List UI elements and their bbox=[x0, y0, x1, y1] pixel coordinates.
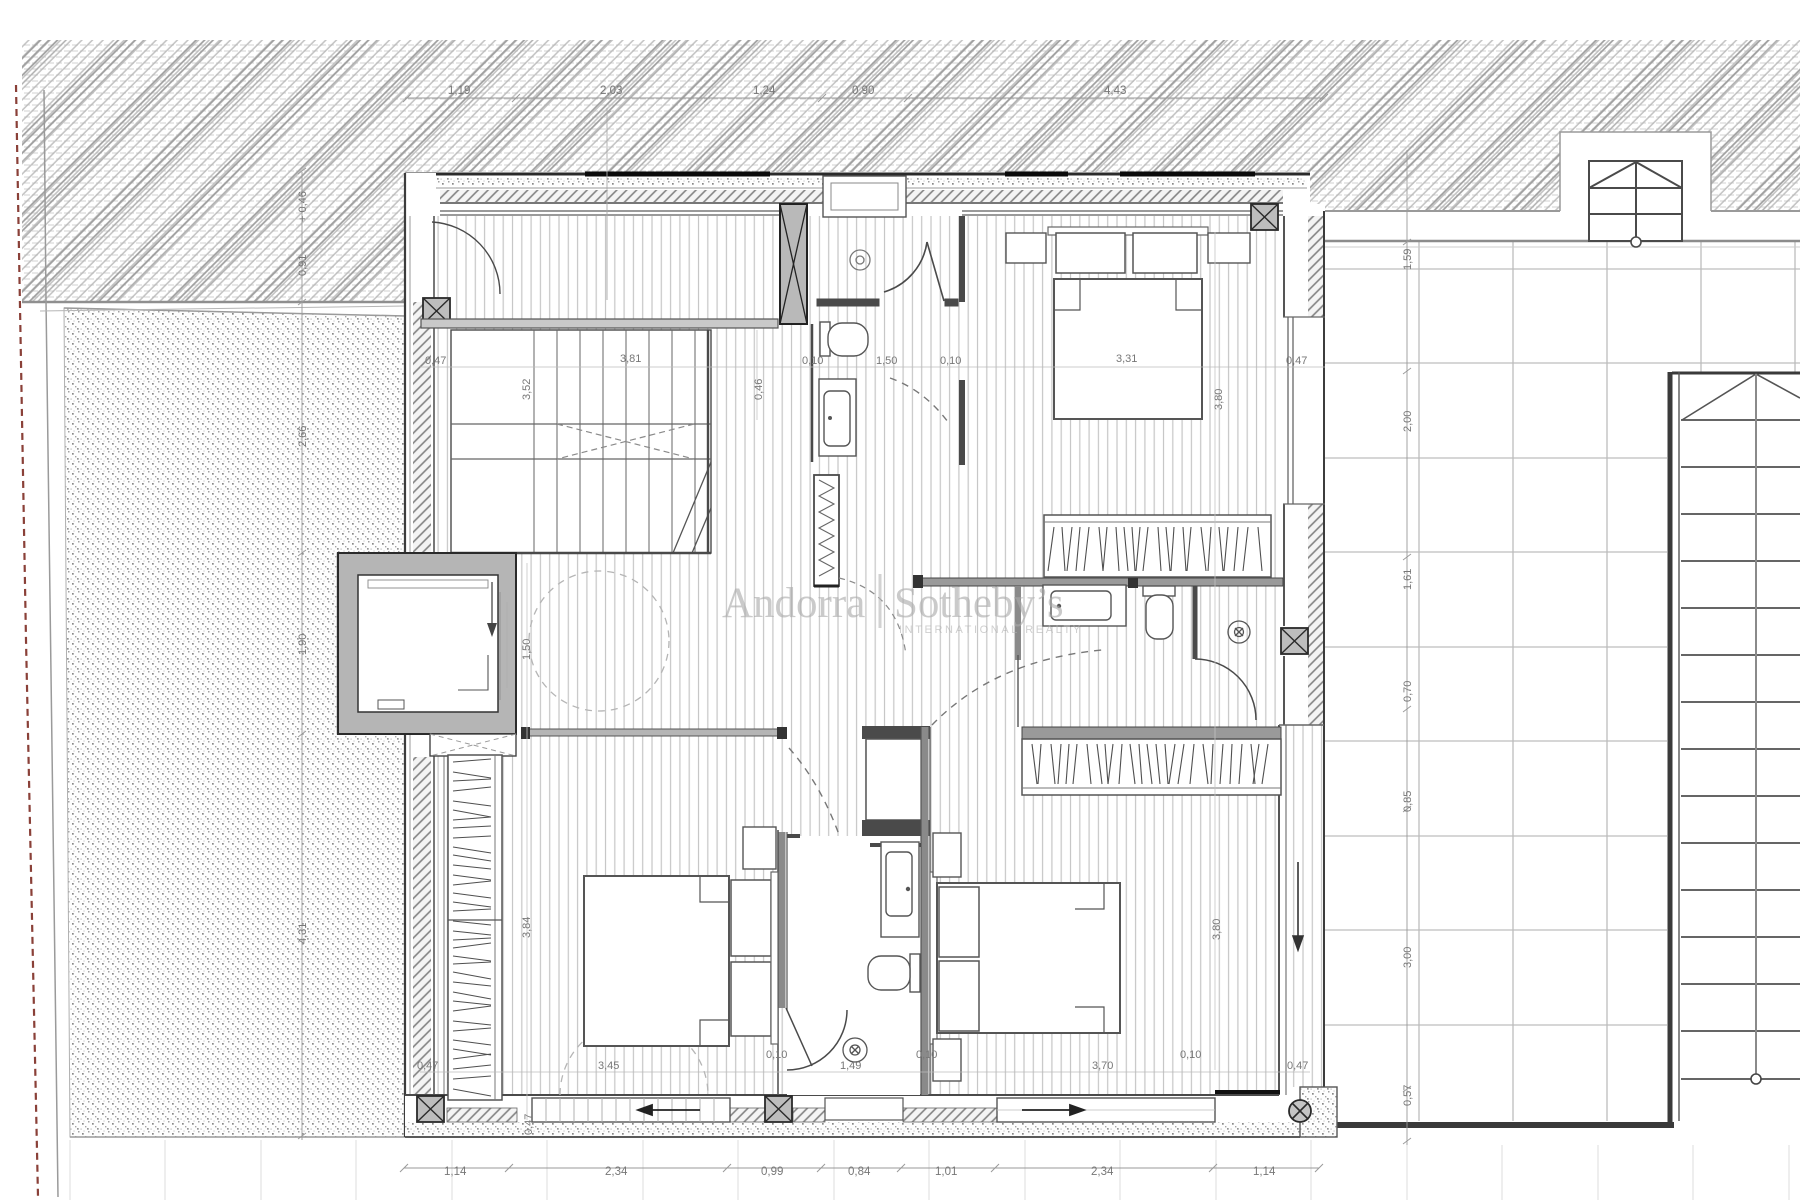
svg-text:3,52: 3,52 bbox=[521, 379, 533, 400]
svg-text:3,31: 3,31 bbox=[1116, 353, 1137, 365]
svg-text:INTERNATIONAL REALTY: INTERNATIONAL REALTY bbox=[899, 624, 1083, 636]
svg-text:0,47: 0,47 bbox=[1287, 1060, 1308, 1072]
svg-text:4,43: 4,43 bbox=[1104, 85, 1126, 97]
svg-text:Andorra: Andorra bbox=[722, 580, 865, 627]
svg-text:3,80: 3,80 bbox=[1213, 389, 1225, 410]
svg-text:0,46: 0,46 bbox=[753, 379, 765, 400]
svg-text:0,10: 0,10 bbox=[1180, 1049, 1201, 1061]
svg-text:0,70: 0,70 bbox=[1402, 681, 1414, 702]
svg-text:2,34: 2,34 bbox=[1091, 1166, 1114, 1178]
svg-text:2,66: 2,66 bbox=[297, 426, 309, 447]
svg-text:0,10: 0,10 bbox=[802, 355, 823, 367]
svg-text:3,81: 3,81 bbox=[620, 353, 641, 365]
svg-text:0,10: 0,10 bbox=[940, 355, 961, 367]
svg-text:0,47: 0,47 bbox=[417, 1060, 438, 1072]
svg-text:1,50: 1,50 bbox=[876, 355, 897, 367]
svg-text:1,50: 1,50 bbox=[521, 639, 533, 660]
svg-text:0,10: 0,10 bbox=[916, 1049, 937, 1061]
svg-text:3,70: 3,70 bbox=[1092, 1060, 1113, 1072]
svg-text:4,31: 4,31 bbox=[297, 923, 309, 944]
svg-text:0,47: 0,47 bbox=[523, 1114, 535, 1135]
svg-text:0,90: 0,90 bbox=[852, 85, 874, 97]
svg-text:3,80: 3,80 bbox=[1211, 919, 1223, 940]
svg-text:0,84: 0,84 bbox=[848, 1166, 871, 1178]
svg-text:2,00: 2,00 bbox=[1402, 411, 1414, 432]
svg-text:2,03: 2,03 bbox=[600, 85, 622, 97]
svg-text:0,99: 0,99 bbox=[761, 1166, 783, 1178]
svg-text:1,14: 1,14 bbox=[444, 1166, 467, 1178]
svg-text:0,47: 0,47 bbox=[1286, 355, 1307, 367]
svg-text:1,90: 1,90 bbox=[297, 634, 309, 655]
svg-text:3,84: 3,84 bbox=[521, 917, 533, 938]
svg-text:0,57: 0,57 bbox=[1402, 1085, 1414, 1106]
svg-text:+ 0,46: + 0,46 bbox=[297, 191, 309, 222]
svg-text:2,34: 2,34 bbox=[605, 1166, 628, 1178]
svg-text:0,47: 0,47 bbox=[425, 355, 446, 367]
svg-text:1,01: 1,01 bbox=[935, 1166, 957, 1178]
svg-text:1,61: 1,61 bbox=[1402, 569, 1414, 590]
svg-text:3,00: 3,00 bbox=[1402, 947, 1414, 968]
svg-text:0,10: 0,10 bbox=[766, 1049, 787, 1061]
svg-text:1,19: 1,19 bbox=[448, 85, 470, 97]
svg-text:0,91: 0,91 bbox=[297, 255, 309, 276]
svg-text:0,85: 0,85 bbox=[1402, 791, 1414, 812]
svg-text:1,14: 1,14 bbox=[1253, 1166, 1276, 1178]
svg-text:Sotheby’s: Sotheby’s bbox=[894, 580, 1064, 627]
svg-text:1,49: 1,49 bbox=[840, 1060, 861, 1072]
svg-text:3,45: 3,45 bbox=[598, 1060, 619, 1072]
svg-text:1,59: 1,59 bbox=[1402, 249, 1414, 270]
svg-text:1,24: 1,24 bbox=[753, 85, 776, 97]
